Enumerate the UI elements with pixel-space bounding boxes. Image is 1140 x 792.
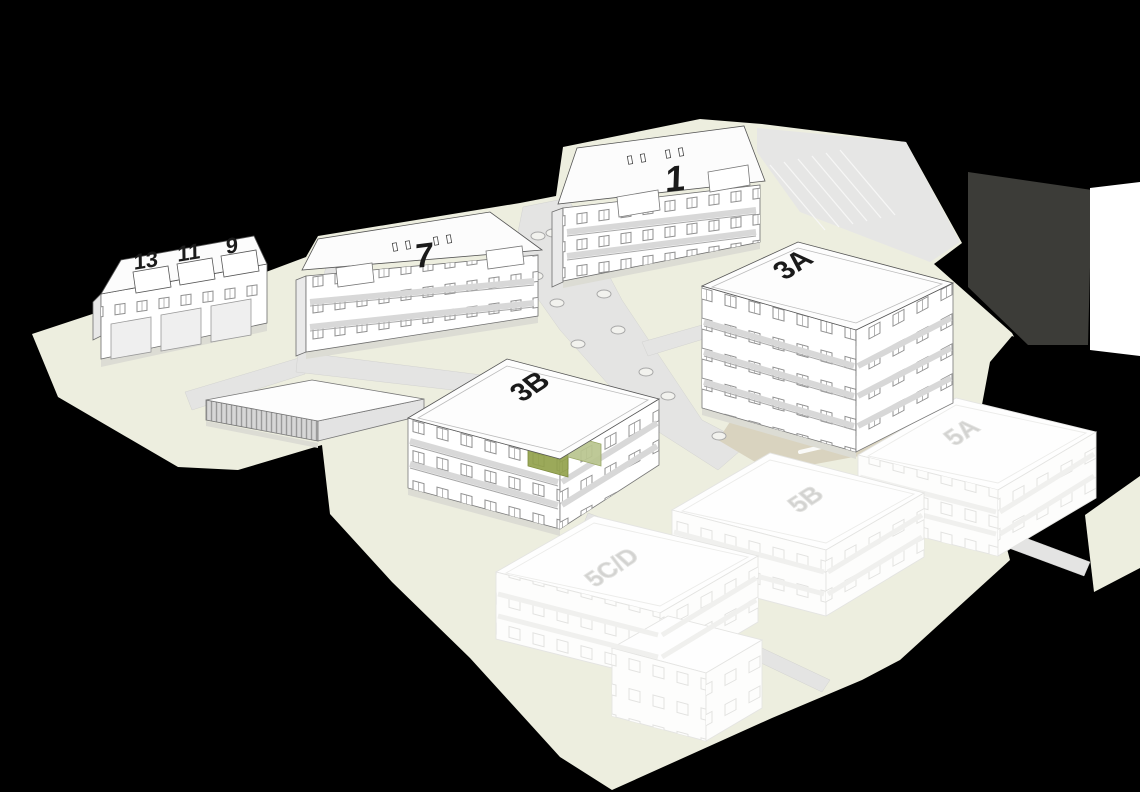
tree — [571, 340, 585, 348]
tree — [531, 232, 545, 240]
white-area-right — [1090, 182, 1140, 356]
building-label-13: 13 — [134, 246, 159, 275]
tree — [597, 290, 611, 298]
tree — [611, 326, 625, 334]
building-label-9: 9 — [226, 232, 239, 259]
gable-left — [552, 208, 563, 287]
building-label-1: 1 — [665, 157, 686, 200]
building-label-7: 7 — [414, 236, 433, 276]
tree — [550, 299, 564, 307]
building-label-11: 11 — [177, 238, 200, 267]
site-plan-canvas: 5A 5B 5C/D — [0, 0, 1140, 792]
tree — [661, 392, 675, 400]
gable-left — [93, 294, 101, 340]
tree — [639, 368, 653, 376]
tree — [712, 432, 726, 440]
site-plan-3d-view: 5A 5B 5C/D — [0, 0, 1140, 792]
gable-left — [296, 276, 306, 356]
